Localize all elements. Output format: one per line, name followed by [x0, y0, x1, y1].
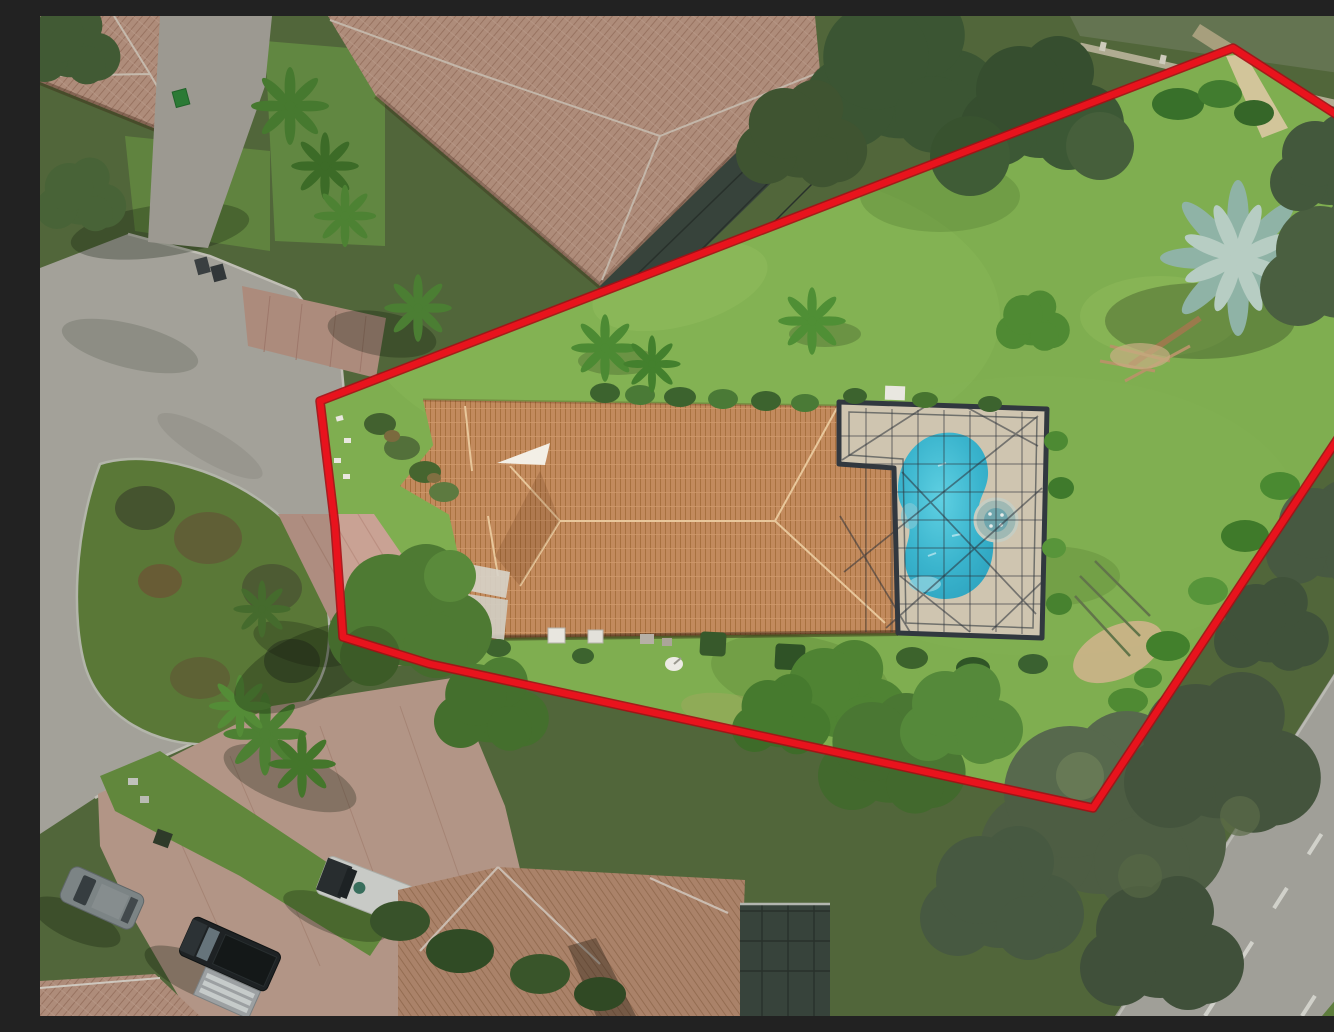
hedge [572, 648, 594, 664]
aerial-photo-canvas [40, 16, 1334, 1016]
small-palm [778, 287, 846, 355]
ac-unit [588, 630, 603, 643]
equipment-box [662, 638, 672, 646]
hedge [1234, 100, 1274, 126]
ac-unit [548, 628, 565, 643]
aerial-photo [40, 16, 1334, 1016]
hedge [1152, 88, 1204, 120]
shrub [1134, 668, 1162, 688]
equipment-box [640, 634, 654, 644]
hedge [1198, 80, 1242, 108]
equipment-pad [885, 386, 905, 401]
small-palm [571, 314, 639, 382]
square-hedge [699, 631, 726, 656]
small-palm [623, 335, 680, 392]
frond-debris [1110, 343, 1170, 369]
